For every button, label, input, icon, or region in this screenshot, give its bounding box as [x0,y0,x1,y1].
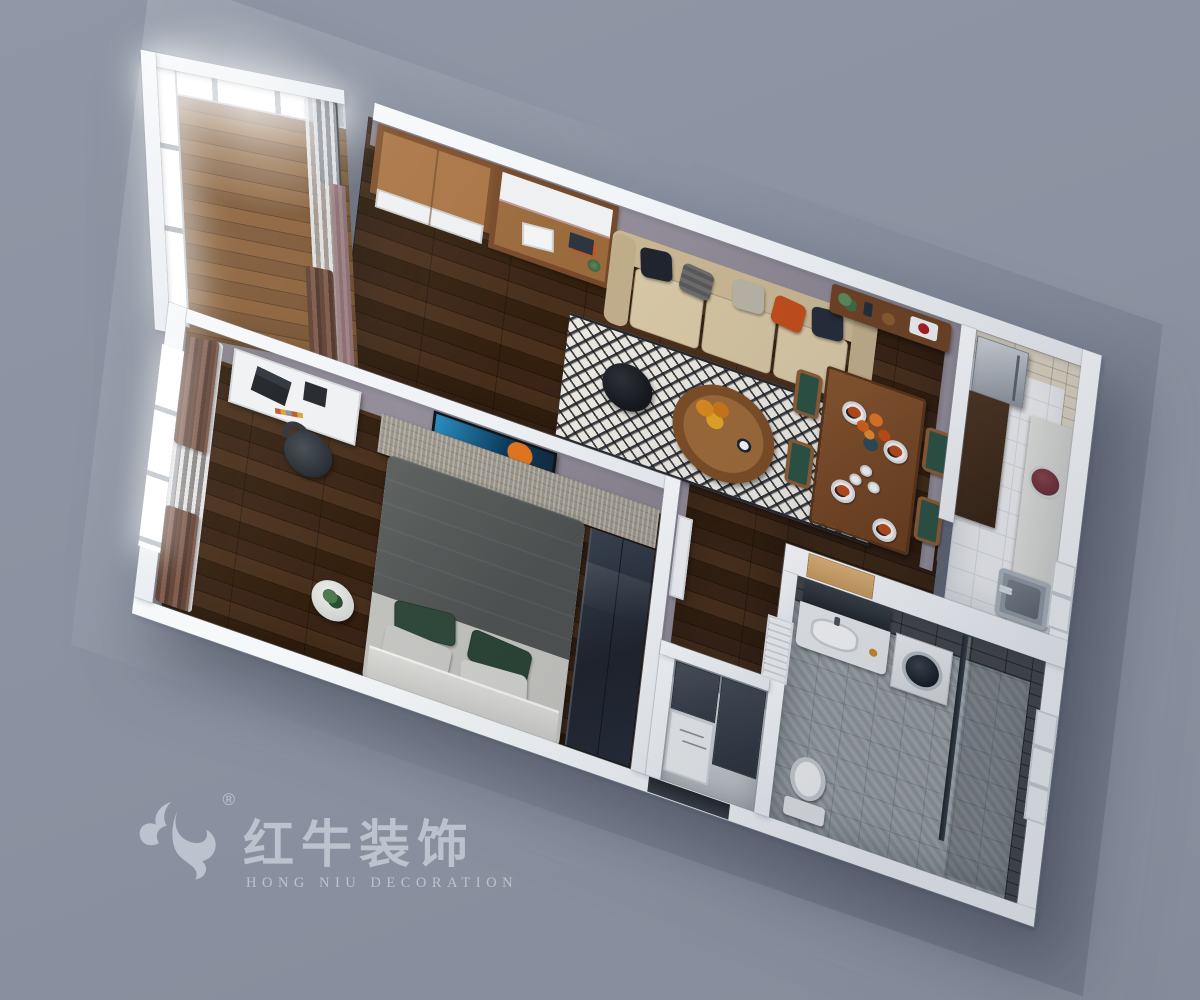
brand-text-block: 红牛装饰 HONG NIU DECORATION [243,818,518,892]
dining-chair [792,368,823,421]
registered-trademark-symbol: ® [222,790,235,810]
rice-bowl [867,480,880,495]
laptop-on-desk [251,366,292,406]
coffee-table-flowers [689,389,737,440]
brand-name-chinese: 红牛装饰 [243,818,518,872]
soap-dish [869,648,878,658]
rice-cooker-on-shelf [909,316,939,342]
bull-swoosh-glyph [135,792,231,892]
balcony-curtain-brown [305,265,338,364]
plate-food [877,522,891,537]
desk-plant [587,258,601,274]
desk-books [568,232,594,255]
desk-stationery [275,408,303,418]
vanity-faucet [834,616,841,626]
dining-chair [784,438,815,491]
toilet [782,751,830,829]
fridge-handle [1012,355,1020,401]
brand-name-english: HONG NIU DECORATION [243,875,518,892]
vase-orange-flowers [846,399,899,456]
rice-bowl [859,463,872,478]
wardrobe-sheen [582,561,651,625]
plate-food [836,483,850,498]
coffee-cup [736,436,752,455]
shelf-bowl [881,311,895,327]
brand-watermark: ® 红牛装饰 HONG NIU DECORATION [135,792,518,892]
washer-door [904,650,941,692]
laptop [522,222,554,252]
shelf-bottle [863,301,873,317]
rice-cooker-red-lid [918,322,930,336]
bull-swoosh-icon: ® [135,792,231,892]
sink-basin [1004,578,1041,620]
shelf-plant [837,291,857,314]
dining-table [809,365,927,556]
nightstand-plant [320,584,344,612]
tablet-on-desk [303,381,327,407]
render-canvas: ® 红牛装饰 HONG NIU DECORATION [0,0,1200,1000]
hanger-marks [677,740,707,755]
dinner-plate [871,515,898,545]
